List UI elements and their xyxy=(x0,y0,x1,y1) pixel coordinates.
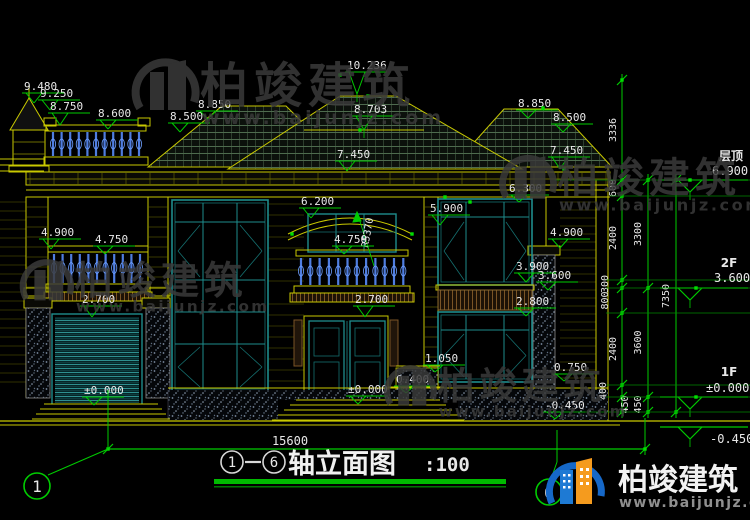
elevation-marker-value: 8.850 xyxy=(518,97,551,110)
brand-url: www.baijunjz.com xyxy=(619,495,750,511)
watermark-url: www.baijunjz.com xyxy=(559,196,750,215)
elevation-marker-value: 2.700 xyxy=(355,293,388,306)
elevation-marker-value: ±0.000 xyxy=(84,384,124,397)
watermark-url: www.baijunjz.com xyxy=(202,107,444,129)
brand-logo-tower-blue xyxy=(560,470,573,504)
f1-level-value: ±0.000 xyxy=(706,381,749,395)
title-underline xyxy=(214,479,506,484)
elevation-marker-value: 8.500 xyxy=(170,110,203,123)
f2-level-value: 3.600 xyxy=(714,271,750,285)
chain-dimension-value: 2400 xyxy=(608,337,619,361)
title-underline-2 xyxy=(214,486,506,488)
cad-canvas: R53709.4809.2508.7508.6008.5008.85010.23… xyxy=(0,0,750,520)
elevation-marker-value: 3.600 xyxy=(538,269,571,282)
elevation-marker-value: 4.750 xyxy=(95,233,128,246)
drawing-scale: :100 xyxy=(424,454,470,476)
drawing-title: 轴立面图 xyxy=(288,448,396,480)
f1-level-label: 1F xyxy=(721,365,738,379)
title-axis-start: 1 xyxy=(228,455,236,471)
elevation-marker-value: 1.050 xyxy=(425,352,458,365)
f2-level-label: 2F xyxy=(721,256,738,270)
elevation-marker-value: 5.900 xyxy=(430,202,463,215)
title-axis-end: 6 xyxy=(270,455,278,471)
brand-footer: 柏竣建筑 www.baijunjz.com xyxy=(549,458,750,511)
watermark-brand: 柏竣建筑 xyxy=(437,364,605,408)
watermark-url: www.baijunjz.com xyxy=(439,403,628,420)
watermark-url: www.baijunjz.com xyxy=(76,298,270,316)
elevation-marker-value: 7.450 xyxy=(337,148,370,161)
watermark-brand: 柏竣建筑 xyxy=(557,154,741,202)
brand-name: 柏竣建筑 xyxy=(618,463,738,498)
chain-dimension-value: 300 xyxy=(600,275,611,293)
chain-dimension-value: 3600 xyxy=(633,330,644,354)
elevation-marker-value: 8.500 xyxy=(553,111,586,124)
chain-dimension-value: 450 xyxy=(633,395,644,413)
elevation-marker-value: 9.250 xyxy=(40,87,73,100)
elevation-marker-value: 4.900 xyxy=(550,226,583,239)
overall-width-dimension: 15600 xyxy=(272,434,308,448)
elevation-marker-value: 6.200 xyxy=(301,195,334,208)
elevation-marker-value: 2.800 xyxy=(516,295,549,308)
elevation-drawing: R53709.4809.2508.7508.6008.5008.85010.23… xyxy=(0,0,750,520)
chain-dimension-value: 3300 xyxy=(633,222,644,246)
ground-level-value: -0.450 xyxy=(710,432,750,446)
elevation-marker-value: ±0.000 xyxy=(348,383,388,396)
brand-logo-tower-orange xyxy=(576,458,592,504)
elevation-marker-value: 8.600 xyxy=(98,107,131,120)
elevation-marker-value: 4.750 xyxy=(334,233,367,246)
watermark-brand: 柏竣建筑 xyxy=(200,58,416,114)
elevation-marker-value: 4.900 xyxy=(41,226,74,239)
chain-dimension-value: 3336 xyxy=(608,118,619,142)
chain-dimension-value: 2400 xyxy=(608,226,619,250)
chain-dimension-value: 7350 xyxy=(661,284,672,308)
chain-dimension-value: 800 xyxy=(600,291,611,309)
axis-bubble-1-number: 1 xyxy=(32,477,42,496)
elevation-marker-value: 8.750 xyxy=(50,100,83,113)
